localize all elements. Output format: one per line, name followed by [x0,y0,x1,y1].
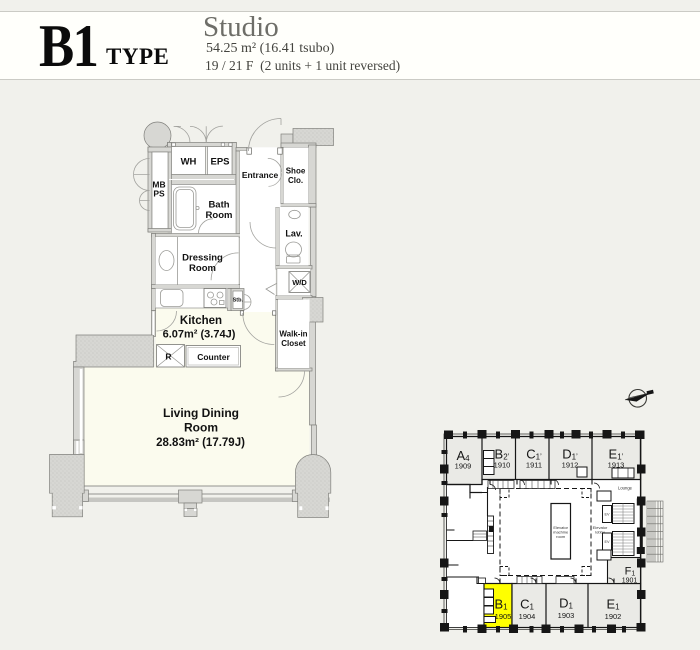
svg-text:WH: WH [181,157,197,168]
svg-text:Shoe: Shoe [286,167,306,176]
svg-text:1912: 1912 [562,461,579,470]
svg-text:1903: 1903 [558,611,575,620]
svg-text:1904: 1904 [519,612,536,621]
svg-text:PS: PS [153,189,165,199]
svg-text:Lounge: Lounge [618,486,633,491]
svg-text:1901: 1901 [622,578,638,585]
svg-text:Stb.: Stb. [233,298,244,304]
svg-text:Room: Room [206,210,233,221]
svg-text:1905: 1905 [495,612,512,621]
svg-text:Bath: Bath [208,200,229,211]
svg-text:EV: EV [604,540,610,544]
svg-text:Kitchen: Kitchen [180,315,222,327]
svg-text:EV: EV [604,513,610,517]
svg-text:room: room [556,534,566,539]
svg-text:1902: 1902 [605,612,622,621]
svg-text:6.07m² (3.74J): 6.07m² (3.74J) [163,329,236,341]
svg-text:Walk-in: Walk-in [279,330,307,339]
svg-text:EPS: EPS [210,157,229,168]
svg-text:Entrance: Entrance [242,170,279,180]
svg-text:1910: 1910 [494,461,511,470]
svg-text:Counter: Counter [197,352,230,362]
svg-text:Lav.: Lav. [285,229,302,239]
svg-text:1909: 1909 [455,462,472,471]
svg-text:R: R [165,352,171,362]
svg-text:Room: Room [189,263,216,274]
svg-text:Room: Room [184,421,218,435]
svg-text:W/D: W/D [292,278,307,287]
svg-text:1911: 1911 [526,461,542,470]
svg-text:Closet: Closet [281,339,306,348]
svg-text:28.83m² (17.79J): 28.83m² (17.79J) [156,437,245,449]
svg-text:Dressing: Dressing [182,253,223,264]
svg-text:Clo.: Clo. [288,176,303,185]
svg-text:Living Dining: Living Dining [163,406,239,420]
svg-text:1913: 1913 [608,461,625,470]
